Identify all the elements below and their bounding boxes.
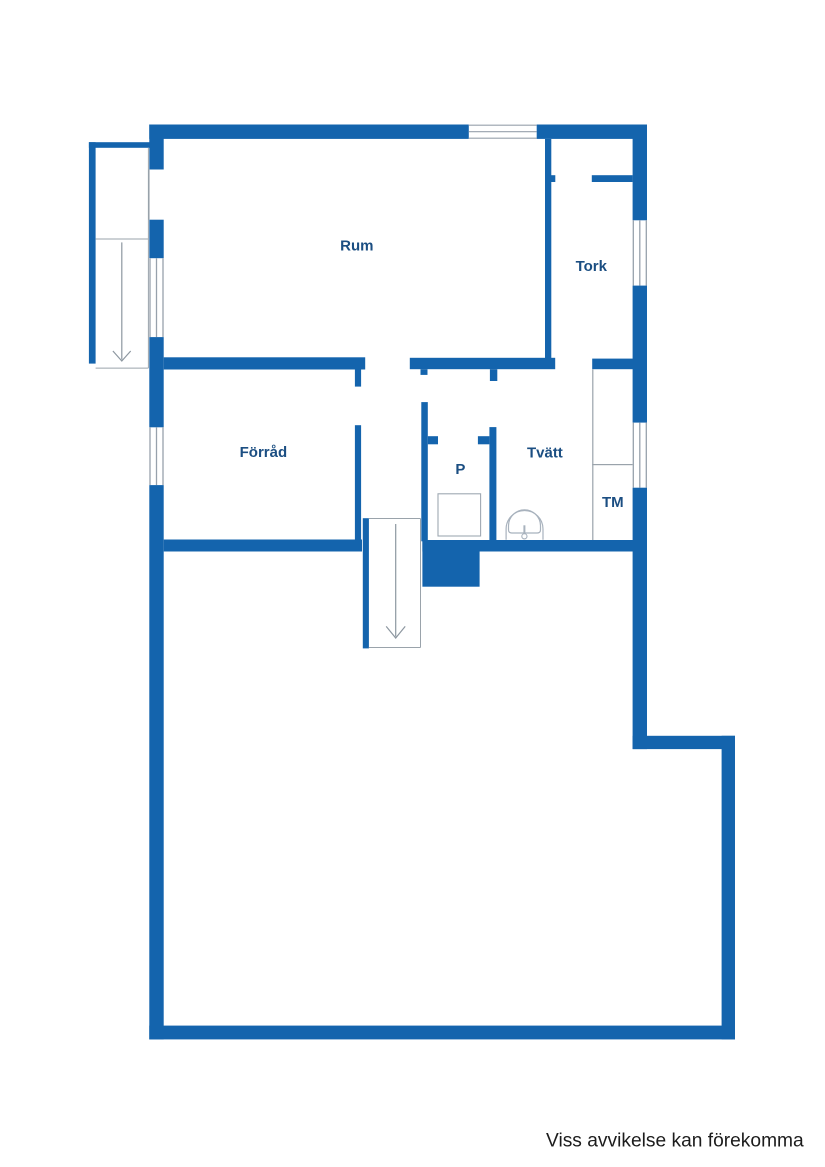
svg-text:TM: TM — [602, 494, 624, 511]
svg-text:Rum: Rum — [340, 238, 373, 255]
svg-text:P: P — [455, 461, 465, 478]
svg-text:Tork: Tork — [576, 258, 608, 275]
svg-text:Förråd: Förråd — [240, 444, 288, 461]
svg-text:Viss avvikelse kan förekomma: Viss avvikelse kan förekomma — [546, 1130, 804, 1151]
svg-text:Tvätt: Tvätt — [527, 445, 563, 462]
